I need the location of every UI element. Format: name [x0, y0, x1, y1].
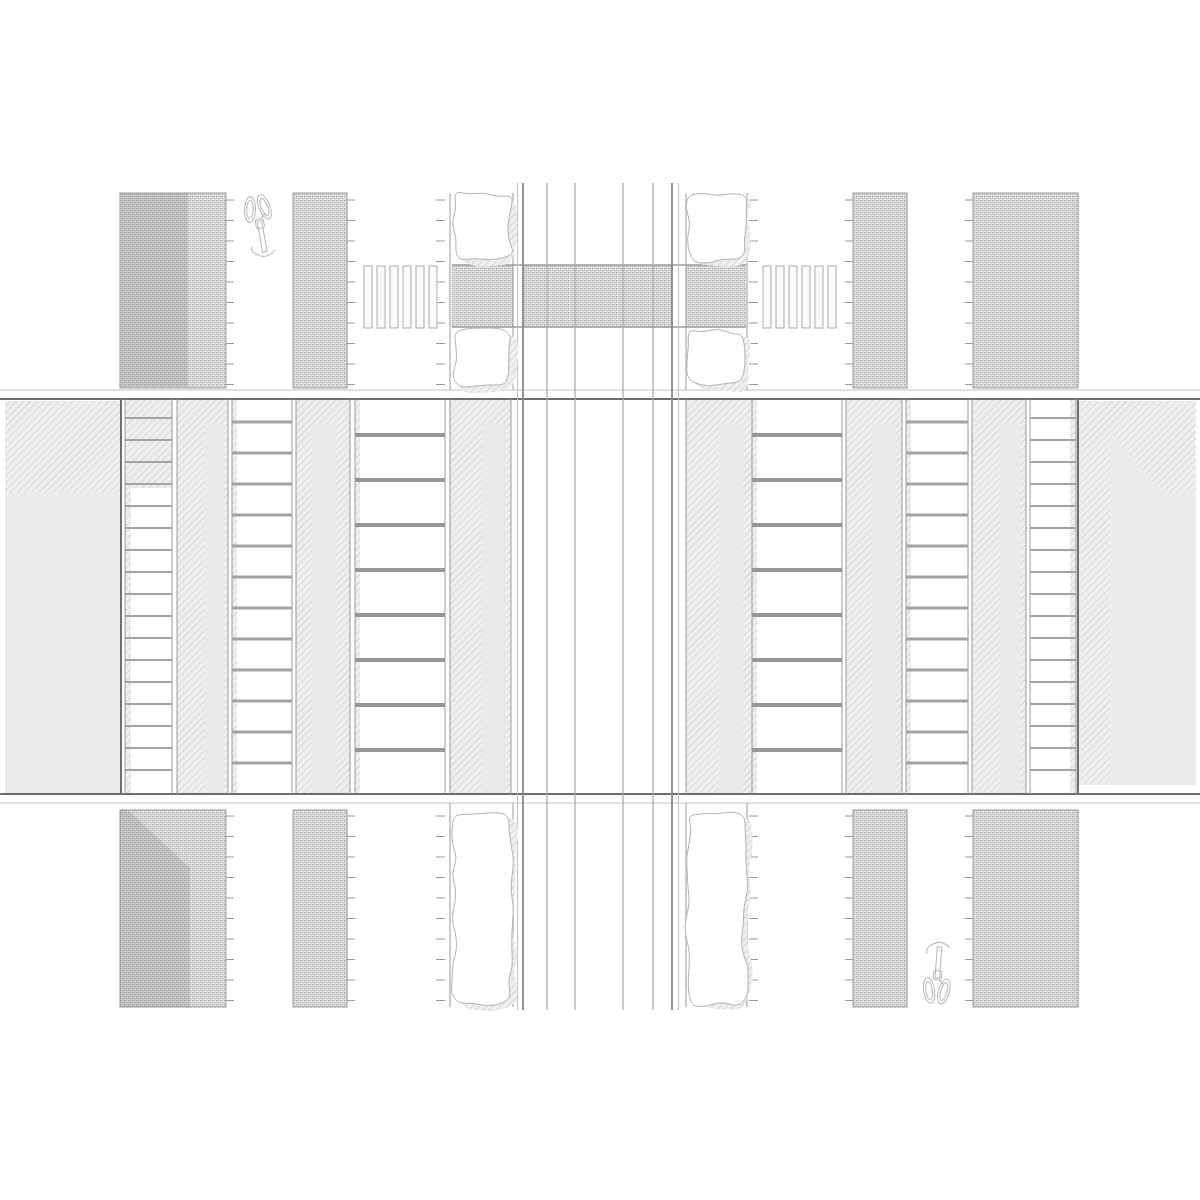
curb-ticks-bottom-strip-right	[845, 816, 853, 1001]
zebra-stripe	[802, 266, 810, 328]
walkway-c-right-inner-band	[719, 424, 743, 793]
tree-canopy	[453, 328, 510, 387]
walkway-c-left-inner-band	[482, 424, 506, 793]
walkway-a-left-inner-band	[205, 424, 224, 793]
curb-ticks-top-block-right	[965, 200, 973, 385]
zebra-stripe	[390, 266, 398, 328]
stair-band-3-left	[355, 435, 445, 750]
crosswalk-table-left	[452, 265, 513, 327]
curb-ticks-top-block-left	[226, 200, 234, 385]
zebra-stripe	[763, 266, 771, 328]
tree-canopy	[685, 812, 748, 1007]
curb-ticks-top-strip-left	[347, 200, 355, 385]
stair-band-3-right-edge-sliver	[752, 400, 757, 793]
paved-strip-top-right	[853, 193, 907, 388]
bike-wheel-inner	[925, 981, 934, 1000]
tree-top-right-upper	[686, 193, 751, 266]
paved-block-top-left-shade	[121, 193, 188, 387]
zebra-stripe	[776, 266, 784, 328]
stair-band-2-right	[906, 422, 968, 763]
street-intersection-plan	[0, 0, 1200, 1200]
bike-seat	[255, 218, 265, 228]
stair-band-1-right-edge-sliver	[1070, 400, 1076, 793]
drawing-page	[0, 0, 1200, 1200]
crosswalk-table-right	[686, 265, 746, 327]
zebra-stripe	[828, 266, 836, 328]
stair-band-1-right	[1030, 418, 1076, 770]
tree-bottom-left	[451, 813, 518, 1012]
bike-frame	[257, 221, 267, 253]
zebra-crossing-left	[364, 266, 437, 328]
stair-band-3-left-edge-sliver	[355, 400, 360, 793]
building-right-roof-hatch-column	[1081, 401, 1110, 785]
curb-ticks-bottom-block-left	[226, 816, 234, 1001]
bike-wheel-inner	[246, 200, 253, 219]
tree-canopy	[451, 813, 513, 1006]
bike-handlebar-grip	[251, 246, 255, 254]
paved-block-top-right	[973, 193, 1078, 388]
tree-canopy	[686, 193, 746, 263]
stair-band-2-right-edge-sliver	[906, 400, 911, 793]
zebra-stripe	[789, 266, 797, 328]
zebra-crossing-right	[763, 266, 836, 328]
stair-band-2-left-edge-sliver	[232, 400, 237, 793]
paved-strip-bottom-right	[853, 810, 907, 1007]
curb-ticks-bottom-tree-left	[436, 816, 445, 1001]
paved-strip-top-left	[293, 193, 347, 388]
curb-ticks-bottom-block-right	[965, 816, 973, 1001]
paved-block-bottom-right	[973, 810, 1078, 1007]
crosswalk-table-center	[523, 265, 672, 327]
stair-band-2-left	[232, 422, 292, 763]
bike-wheel	[935, 978, 953, 1006]
tree-top-left-upper	[453, 192, 518, 266]
tree-top-right-lower	[687, 329, 751, 392]
bike-seat	[933, 971, 942, 981]
zebra-stripe	[815, 266, 823, 328]
bike-wheel	[254, 193, 274, 221]
bicycle-symbol-bottom-right	[920, 941, 955, 1006]
zebra-stripe	[416, 266, 424, 328]
bicycle-symbol-top-left	[240, 192, 281, 259]
bike-handlebar-grip	[926, 946, 929, 954]
tree-canopy	[687, 329, 745, 385]
curb-ticks-top-strip-right	[845, 200, 853, 385]
zebra-stripe	[377, 266, 385, 328]
tree-bottom-right	[685, 812, 753, 1009]
paved-strip-bottom-left	[293, 810, 347, 1007]
stair-band-3-right	[752, 435, 842, 750]
curb-ticks-top-tree-right	[749, 200, 758, 385]
walkway-a-right-inner-band	[1000, 424, 1020, 793]
zebra-stripe	[364, 266, 372, 328]
walkway-b-right-inner-band	[872, 424, 896, 793]
walkway-b-left-inner-band	[312, 424, 336, 793]
bike-wheel-inner	[258, 197, 271, 216]
building-left-roof-hatch	[5, 401, 121, 493]
zebra-stripe	[429, 266, 437, 328]
tree-top-left-lower	[453, 328, 518, 393]
bike-wheel	[922, 977, 937, 1004]
stair-band-1-left-hatch-top	[125, 400, 172, 488]
tree-canopy	[453, 192, 513, 259]
zebra-stripe	[403, 266, 411, 328]
bike-frame	[935, 947, 942, 979]
curb-ticks-bottom-strip-left	[347, 816, 355, 1001]
stair-bands-layer	[125, 418, 1076, 770]
